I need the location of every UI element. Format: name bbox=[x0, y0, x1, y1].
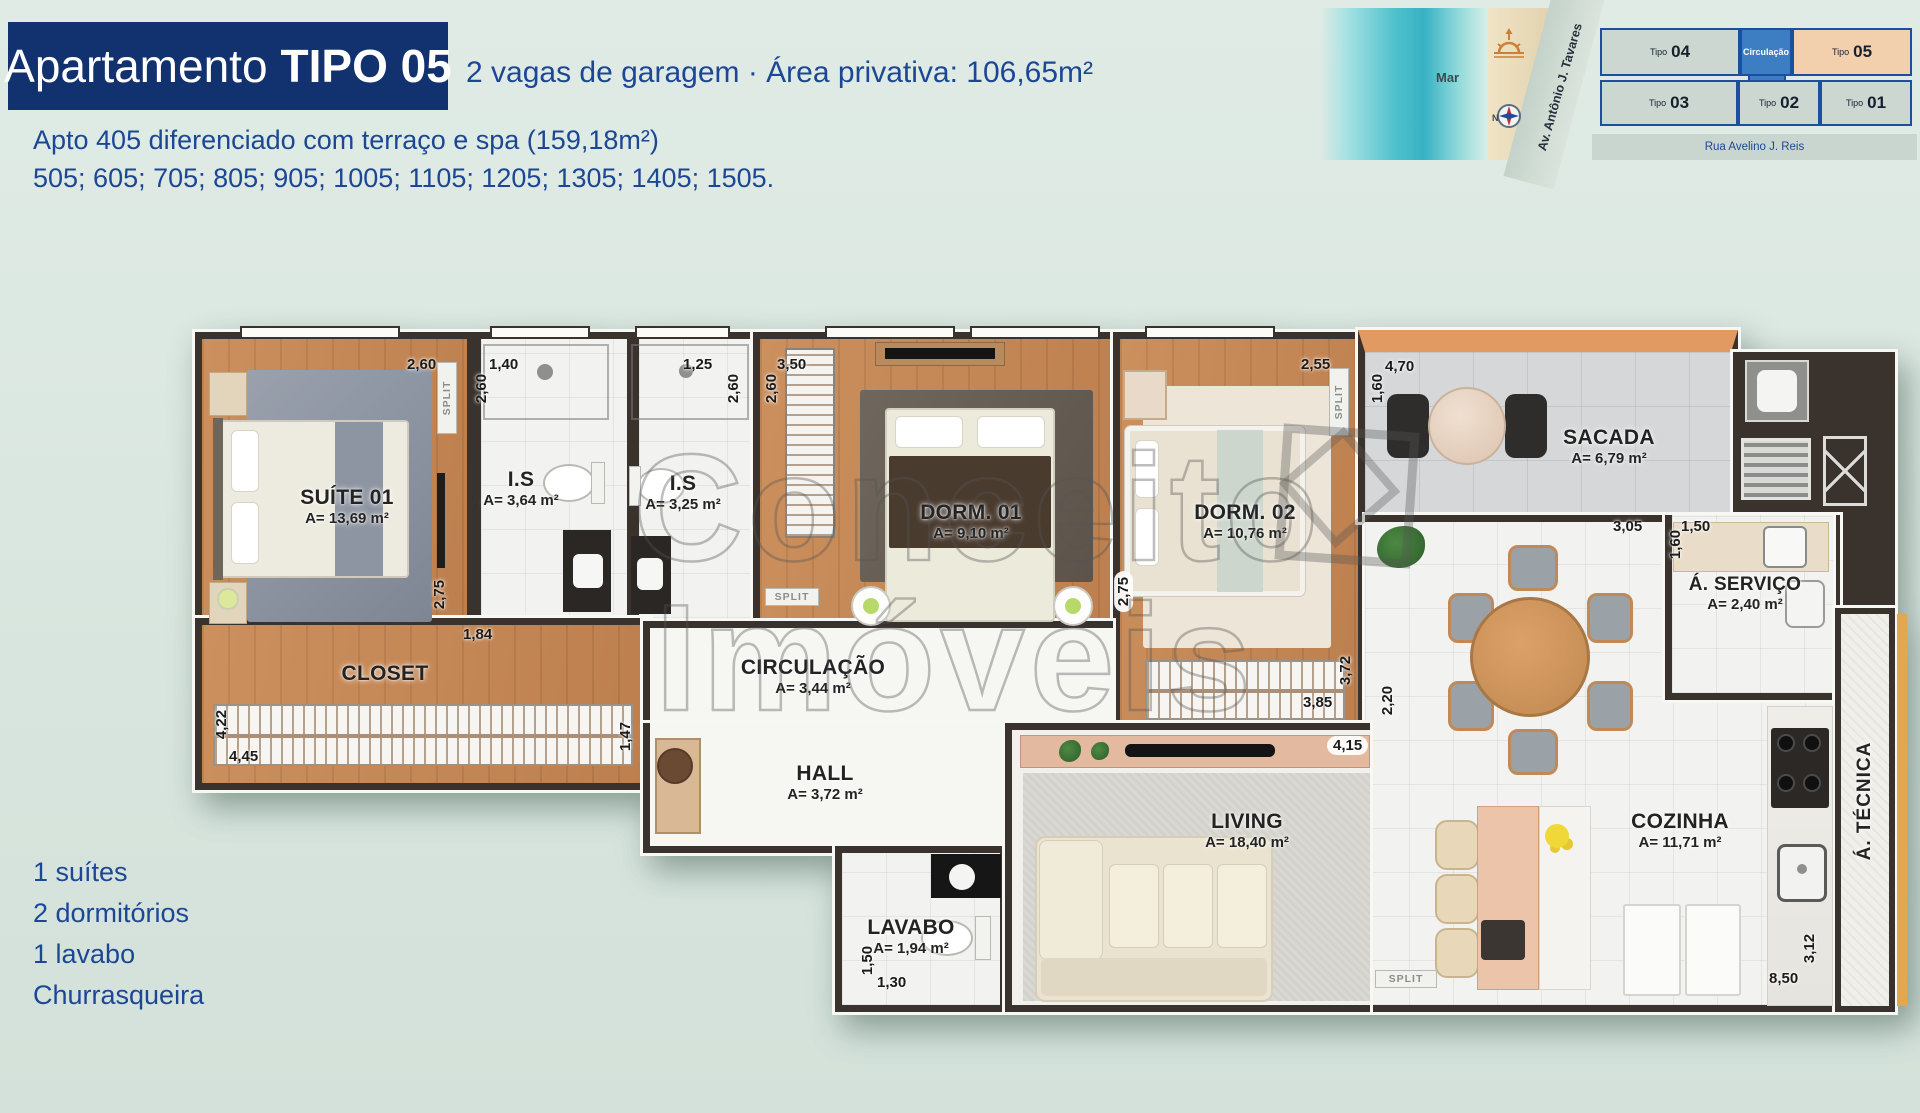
feature-lavabo: 1 lavabo bbox=[33, 934, 204, 975]
dining-chair-s bbox=[1508, 729, 1558, 775]
note-line2: 505; 605; 705; 805; 905; 1005; 1105; 120… bbox=[33, 163, 774, 194]
watermark-logo bbox=[1274, 423, 1419, 568]
window-suite bbox=[240, 326, 400, 339]
title-regular: Apartamento bbox=[4, 39, 267, 93]
sofa-backrest bbox=[1041, 958, 1267, 996]
suite-tv bbox=[437, 473, 445, 568]
sacada-table bbox=[1428, 387, 1506, 465]
split-badge-cozinha: SPLIT bbox=[1375, 970, 1437, 988]
sea-strip bbox=[1320, 8, 1488, 160]
dim-label: 1,84 bbox=[463, 626, 492, 643]
window-is1 bbox=[490, 326, 590, 339]
dim-label: 1,25 bbox=[683, 356, 712, 373]
dim-label: 3,12 bbox=[1801, 934, 1818, 963]
dim-label: 1,40 bbox=[489, 356, 518, 373]
is1-shower-head bbox=[537, 364, 553, 380]
dim-label: 3,50 bbox=[777, 356, 806, 373]
kitchen-faucet bbox=[1797, 864, 1807, 874]
dim-label: 2,55 bbox=[1301, 356, 1330, 373]
dorm2-makeup-table bbox=[1123, 370, 1167, 420]
dim-label: 3,85 bbox=[1303, 694, 1332, 711]
living-tv bbox=[1125, 744, 1275, 757]
sofa-cushion-2 bbox=[1163, 864, 1213, 948]
servico-sink bbox=[1763, 526, 1807, 568]
dim-label: 2,60 bbox=[763, 374, 780, 403]
watermark-line2: Imóveis bbox=[655, 586, 1256, 730]
note-line1: Apto 405 diferenciado com terraço e spa … bbox=[33, 125, 659, 156]
title-banner: Apartamento TIPO 05 bbox=[8, 22, 448, 110]
suite-pillow-2 bbox=[231, 502, 259, 564]
room-label-tecnica: Á. TÉCNICA bbox=[1854, 742, 1876, 861]
dim-label: 4,22 bbox=[213, 710, 230, 739]
keyplan-circulation: Circulação bbox=[1740, 28, 1792, 76]
room-label-cozinha: COZINHA A= 11,71 m² bbox=[1631, 810, 1729, 851]
kitchen-stool-3 bbox=[1435, 928, 1479, 978]
dim-label: 4,45 bbox=[229, 748, 258, 765]
dim-label: 8,50 bbox=[1769, 970, 1798, 987]
dim-label: 1,60 bbox=[1369, 374, 1386, 403]
stove-burner-2 bbox=[1803, 734, 1821, 752]
keyplan-unit-01: Tipo 01 bbox=[1820, 80, 1912, 126]
compass-icon: N bbox=[1492, 100, 1524, 132]
feature-list: 1 suítes 2 dormitórios 1 lavabo Churrasq… bbox=[33, 852, 204, 1016]
subtitle: 2 vagas de garagem · Área privativa: 106… bbox=[466, 56, 1093, 90]
room-label-closet: CLOSET bbox=[342, 662, 429, 686]
feature-dormitorios: 2 dormitórios bbox=[33, 893, 204, 934]
dim-label: 2,60 bbox=[473, 374, 490, 403]
feature-churrasqueira: Churrasqueira bbox=[33, 975, 204, 1016]
feature-suites: 1 suítes bbox=[33, 852, 204, 893]
window-dorm1a bbox=[825, 326, 955, 339]
kitchen-appliance-2 bbox=[1685, 904, 1741, 996]
window-dorm2 bbox=[1145, 326, 1275, 339]
kitchen-stool-1 bbox=[1435, 820, 1479, 870]
lavabo-basin bbox=[949, 864, 975, 890]
dim-label: 1,50 bbox=[1681, 518, 1710, 535]
room-label-lavabo: LAVABO A= 1,94 m² bbox=[867, 916, 954, 957]
suite-lamp bbox=[217, 588, 239, 610]
keyplan-unit-03: Tipo 03 bbox=[1600, 80, 1738, 126]
dim-label: 1,50 bbox=[859, 946, 876, 975]
dining-chair-se bbox=[1587, 681, 1633, 731]
dorm1-tv bbox=[885, 348, 995, 359]
room-label-servico: Á. SERVIÇO A= 2,40 m² bbox=[1689, 574, 1801, 613]
stove-burner-3 bbox=[1777, 774, 1795, 792]
dim-label: 1,30 bbox=[877, 974, 906, 991]
kitchen-island-tray bbox=[1481, 920, 1525, 960]
core-stairs bbox=[1741, 438, 1811, 500]
sunrise-icon bbox=[1490, 26, 1528, 64]
core-elevator bbox=[1823, 436, 1867, 506]
dining-table bbox=[1470, 597, 1590, 717]
window-is2 bbox=[635, 326, 730, 339]
compass-n-letter: N bbox=[1492, 113, 1499, 123]
dim-label: 2,60 bbox=[407, 356, 436, 373]
dim-label: 2,75 bbox=[431, 580, 448, 609]
dining-chair-ne bbox=[1587, 593, 1633, 643]
dining-chair-n bbox=[1508, 545, 1558, 591]
dim-label: 4,15 bbox=[1327, 736, 1368, 755]
stove-burner-1 bbox=[1777, 734, 1795, 752]
sacada-chair-right bbox=[1505, 394, 1547, 458]
dim-label: 4,70 bbox=[1385, 358, 1414, 375]
suite-headboard bbox=[213, 418, 223, 580]
street-strip: Rua Avelino J. Reis bbox=[1592, 134, 1917, 160]
watermark-line1: Conceito bbox=[633, 436, 1323, 580]
kitchen-island-wood bbox=[1477, 806, 1539, 990]
edge-orange-band bbox=[1897, 614, 1907, 1006]
split-badge-suite: SPLIT bbox=[437, 362, 457, 434]
is1-basin bbox=[573, 554, 603, 588]
keyplan-unit-05: Tipo 05 bbox=[1792, 28, 1912, 76]
room-label-is1: I.S A= 3,64 m² bbox=[483, 468, 558, 509]
page: { "header": { "title_regular": "Apartame… bbox=[0, 0, 1920, 1113]
location-minimap: Mar Av. Antônio J. Tavares N Tipo 04 Cir… bbox=[1320, 8, 1920, 168]
lavabo-toilet-tank bbox=[975, 916, 991, 960]
hall-side-table bbox=[657, 748, 693, 784]
room-label-hall: HALL A= 3,72 m² bbox=[787, 762, 862, 803]
kitchen-lemons-bowl bbox=[1545, 824, 1569, 848]
is1-toilet-tank bbox=[591, 462, 605, 504]
title-bold: TIPO 05 bbox=[281, 39, 452, 93]
sea-label: Mar bbox=[1436, 70, 1459, 85]
stove-burner-4 bbox=[1803, 774, 1821, 792]
sofa-chaise bbox=[1039, 840, 1103, 960]
floor-plan: SUÍTE 01 A= 13,69 m² I.S A= 3,64 m² I.S … bbox=[185, 268, 1915, 1020]
dim-label: 1,60 bbox=[1667, 530, 1684, 559]
closet-hanger-rack bbox=[213, 704, 633, 766]
room-label-sacada: SACADA A= 6,79 m² bbox=[1563, 426, 1655, 467]
core-grill-basin bbox=[1757, 370, 1797, 412]
kitchen-stool-2 bbox=[1435, 874, 1479, 924]
keyplan-unit-02: Tipo 02 bbox=[1738, 80, 1820, 126]
dim-label: 2,60 bbox=[725, 374, 742, 403]
room-label-suite: SUÍTE 01 A= 13,69 m² bbox=[300, 486, 393, 527]
sofa-cushion-3 bbox=[1217, 864, 1267, 948]
dim-label: 3,05 bbox=[1613, 518, 1642, 535]
dim-label: 3,72 bbox=[1337, 656, 1354, 685]
room-label-living: LIVING A= 18,40 m² bbox=[1205, 810, 1289, 851]
dim-label: 1,47 bbox=[617, 722, 634, 751]
suite-pillow-1 bbox=[231, 430, 259, 492]
sofa-cushion-1 bbox=[1109, 864, 1159, 948]
dim-label: 2,20 bbox=[1379, 686, 1396, 715]
keyplan-unit-04: Tipo 04 bbox=[1600, 28, 1740, 76]
suite-nightstand-1 bbox=[209, 372, 247, 416]
window-dorm1b bbox=[970, 326, 1100, 339]
kitchen-appliance-1 bbox=[1623, 904, 1681, 996]
